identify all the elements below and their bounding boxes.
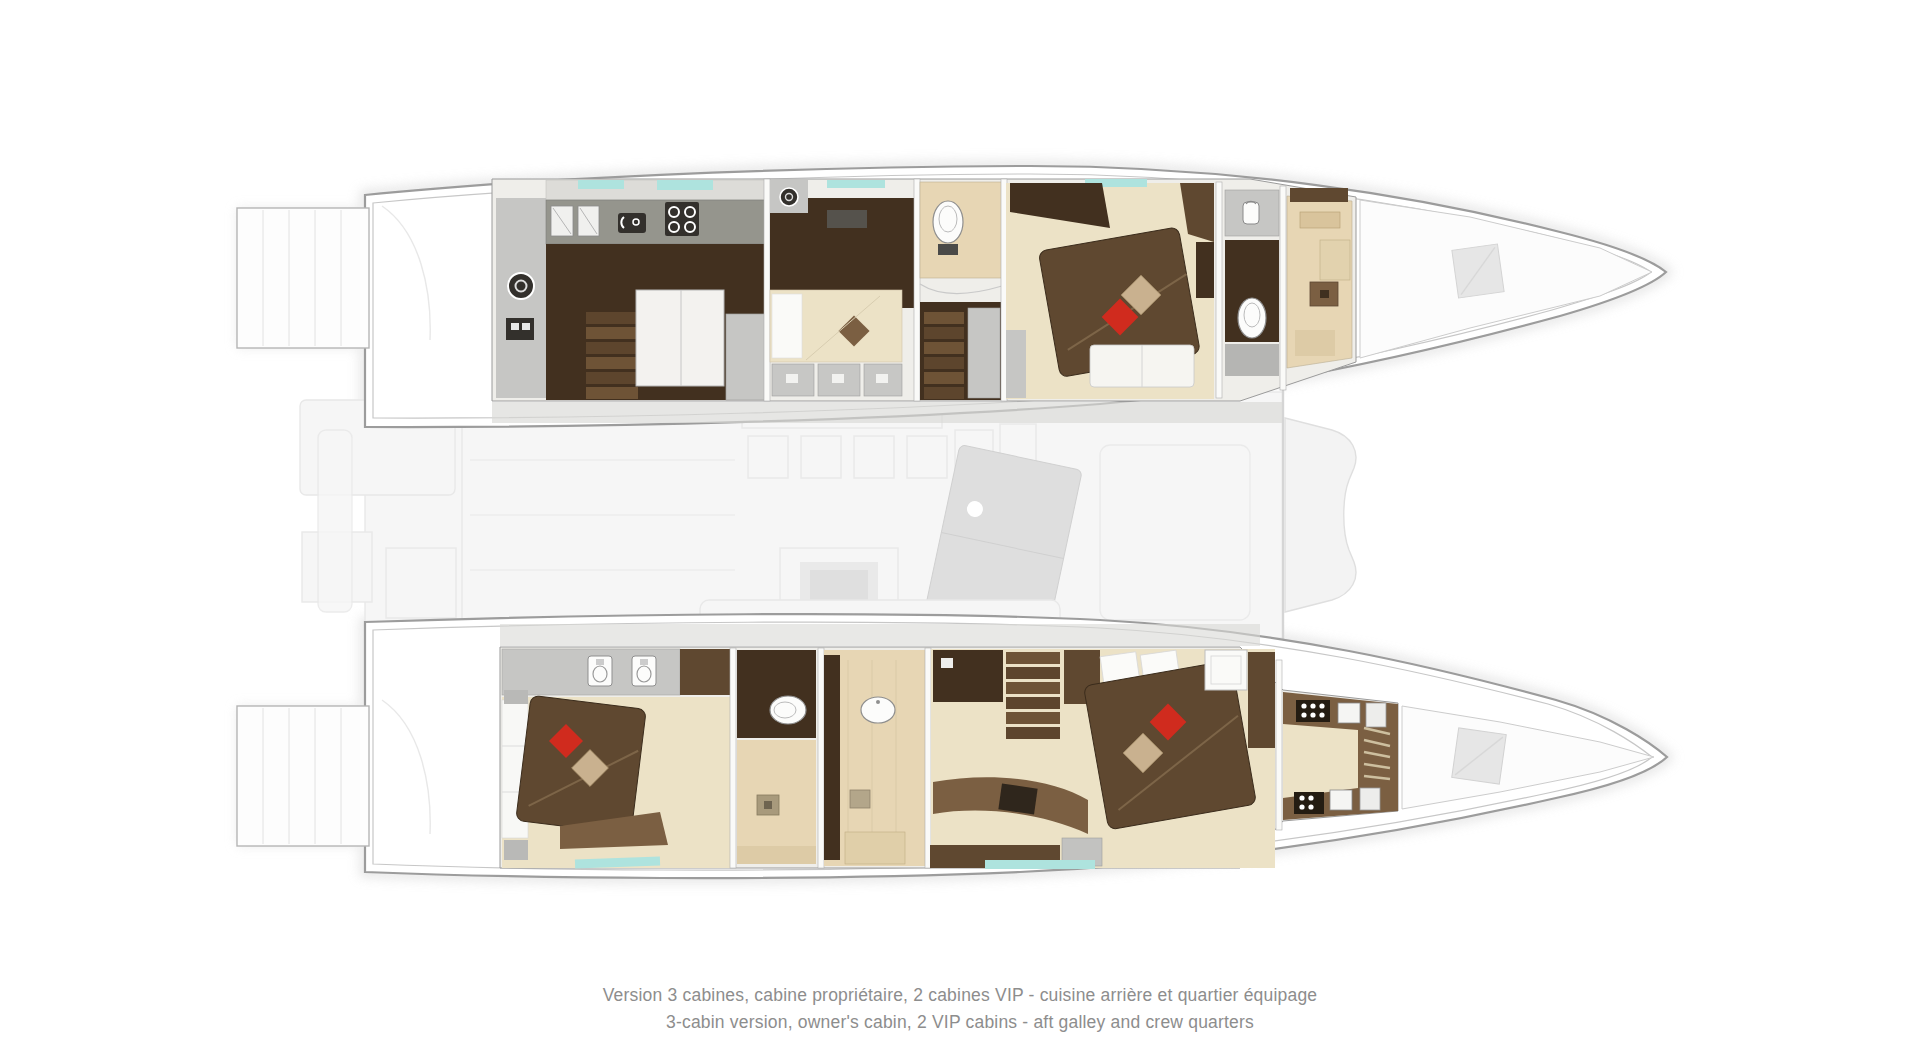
owner-cabin bbox=[1006, 179, 1214, 399]
vip2-top-unit bbox=[933, 650, 1003, 702]
aft-table-2 bbox=[386, 548, 456, 618]
galley bbox=[496, 180, 768, 400]
vip1-gray-box-top bbox=[504, 690, 528, 704]
companionway-locker bbox=[968, 308, 1000, 398]
crew-appliance bbox=[1360, 788, 1380, 810]
bath1-floor bbox=[737, 650, 816, 738]
top-side-deck bbox=[492, 402, 1282, 423]
owner-bathroom bbox=[1287, 188, 1352, 368]
bottom-side-deck bbox=[500, 624, 1260, 646]
water-jug-icon bbox=[1243, 201, 1259, 224]
wc-base bbox=[1225, 344, 1279, 376]
bath1-shower-floor bbox=[737, 740, 816, 846]
shower-drain-icon bbox=[757, 795, 779, 815]
electrical-panel-icon bbox=[506, 318, 534, 340]
sink-icon bbox=[1338, 703, 1360, 723]
bed-pillow-white bbox=[772, 294, 802, 358]
vip-cabin-port-fwd bbox=[930, 646, 1275, 869]
catamaran-floorplan bbox=[0, 0, 1920, 1056]
bow-hatch-icon bbox=[1452, 244, 1504, 298]
vip-cabin-port-aft bbox=[502, 649, 730, 868]
bath-upper-locker bbox=[1290, 188, 1348, 202]
floorplan-canvas: Version 3 cabines, cabine propriétaire, … bbox=[0, 0, 1920, 1056]
bottom-hull bbox=[237, 614, 1667, 878]
washing-machine-icon bbox=[508, 273, 534, 299]
crew-appliance bbox=[1366, 703, 1386, 727]
oven-icon bbox=[618, 213, 646, 233]
crew-cabinet bbox=[827, 210, 867, 228]
bath-vanity bbox=[1320, 240, 1350, 280]
water-jug-icon bbox=[632, 656, 656, 686]
owner-wc bbox=[1225, 190, 1279, 376]
galley-fridge bbox=[726, 314, 768, 400]
caption-line-en: 3-cabin version, owner's cabin, 2 VIP ca… bbox=[0, 1009, 1920, 1036]
vip1-gray-box-bottom bbox=[504, 840, 528, 860]
washing-machine-icon bbox=[780, 188, 798, 206]
desk-laptop bbox=[998, 784, 1037, 815]
top-transom-steps bbox=[237, 208, 369, 348]
water-jug-icon bbox=[588, 656, 612, 686]
bath-shelf bbox=[1300, 212, 1340, 228]
sink-icon bbox=[1330, 790, 1352, 810]
sink-icon bbox=[551, 206, 573, 236]
bath-lower-unit bbox=[1295, 330, 1335, 356]
crew-galley-floor bbox=[1283, 724, 1358, 798]
shower-room bbox=[824, 650, 925, 866]
crew-bed bbox=[770, 290, 902, 362]
stove-burners-icon bbox=[1296, 700, 1330, 722]
foredeck-seat bbox=[1285, 418, 1356, 612]
window-strip bbox=[578, 180, 624, 189]
owner-side-unit bbox=[1006, 330, 1026, 398]
owner-bench bbox=[1090, 345, 1194, 387]
stove-burners-icon bbox=[1294, 792, 1324, 814]
sink-icon bbox=[578, 206, 599, 236]
vip2-wardrobe bbox=[1248, 652, 1275, 748]
vip1-bathroom bbox=[737, 650, 816, 864]
crew-drawers bbox=[772, 364, 902, 396]
window-strip bbox=[827, 180, 885, 188]
owner-divider bbox=[1196, 242, 1214, 298]
shower-bench bbox=[845, 832, 905, 864]
bow-hatch-icon bbox=[1452, 728, 1506, 784]
cooktop-icon bbox=[665, 202, 699, 236]
aft-bench bbox=[318, 430, 352, 612]
bottom-transom-steps bbox=[237, 706, 369, 846]
window-strip bbox=[985, 860, 1095, 869]
sink-basin-icon bbox=[861, 697, 895, 723]
vip2-skylight bbox=[1205, 650, 1247, 690]
shower-drain-icon bbox=[850, 790, 870, 808]
crew-galley bbox=[1283, 692, 1398, 820]
toilet-icon bbox=[1238, 298, 1266, 338]
shower-drain-icon bbox=[1310, 282, 1338, 306]
galley-island bbox=[636, 290, 724, 386]
nav-console bbox=[1100, 445, 1250, 620]
vip1-shelf bbox=[680, 649, 730, 695]
shower-side-cabinet bbox=[824, 655, 840, 860]
caption: Version 3 cabines, cabine propriétaire, … bbox=[0, 982, 1920, 1036]
window-strip bbox=[657, 180, 713, 190]
toilet-icon bbox=[770, 696, 806, 724]
caption-line-fr: Version 3 cabines, cabine propriétaire, … bbox=[0, 982, 1920, 1009]
bath1-bench bbox=[737, 846, 816, 864]
